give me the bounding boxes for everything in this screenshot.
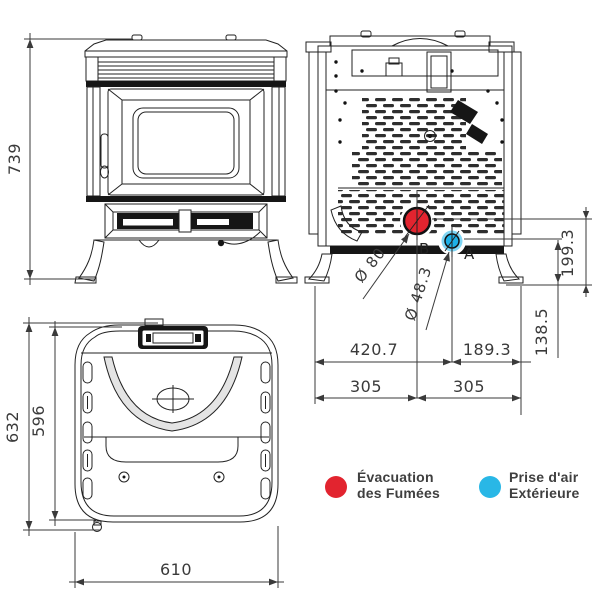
outside-air-dot-icon — [479, 476, 501, 498]
door-window — [133, 108, 239, 178]
legend-smoke-line1: Évacuation — [357, 469, 434, 485]
smoke-outlet-from-left-label: 305 — [350, 377, 382, 396]
front-vent-slats — [98, 57, 274, 81]
smoke-outlet-height-label: 199.3 — [558, 229, 577, 277]
front-height-dimension: 739 — [5, 33, 132, 285]
front-view-drawing: 739 — [5, 33, 297, 285]
legend-smoke-line2: des Fumées — [357, 485, 440, 501]
door-handle — [101, 134, 108, 168]
front-ash-drawer — [105, 204, 267, 238]
width-label: 610 — [160, 560, 192, 579]
stove-dimension-sheet: 739 — [0, 0, 600, 600]
front-legs — [75, 240, 297, 283]
legend-air-line1: Prise d'air — [509, 469, 579, 485]
dimension-drawing: 739 — [0, 0, 600, 600]
smoke-outlet-from-right-label: 305 — [453, 377, 485, 396]
depth-body-label: 596 — [29, 405, 48, 437]
smoke-outlet-letter: B — [419, 240, 429, 258]
top-view-drawing: 632 596 610 — [3, 317, 284, 588]
legend-air-line2: Extérieure — [509, 485, 579, 501]
air-inlet-from-right-label: 189.3 — [463, 340, 511, 359]
front-height-label: 739 — [5, 143, 24, 175]
air-inlet-height-label: 138.5 — [532, 308, 551, 356]
front-door — [101, 89, 265, 195]
air-inlet-letter: A — [464, 245, 475, 263]
rear-view-drawing: 199.3 138.5 420.7 189.3 305 305 — [305, 31, 592, 415]
legend: Évacuation des Fumées Prise d'air Extéri… — [325, 469, 579, 501]
air-inlet-from-left-label: 420.7 — [350, 340, 398, 359]
depth-total-label: 632 — [3, 411, 22, 443]
smoke-evacuation-dot-icon — [325, 476, 347, 498]
